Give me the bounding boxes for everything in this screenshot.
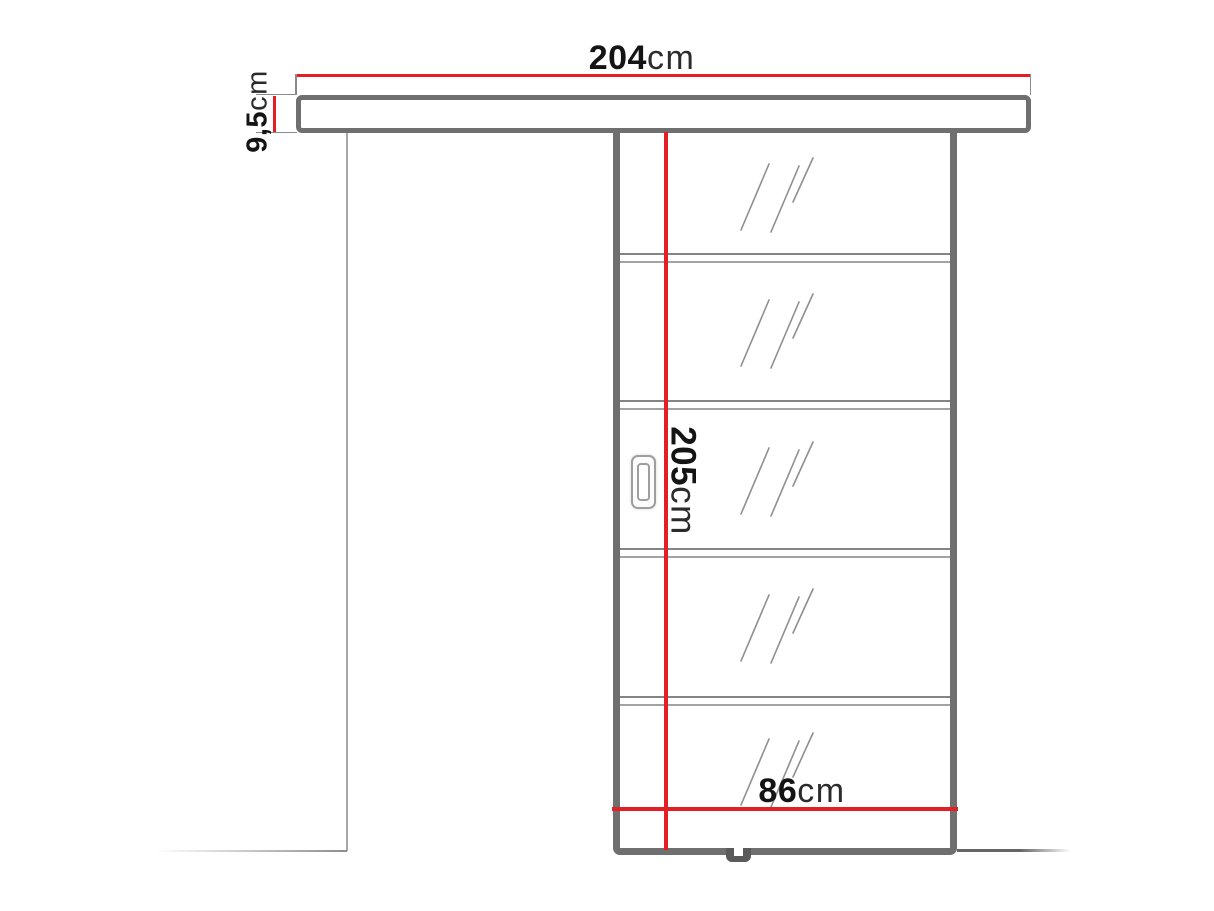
dim-label-door-height: 205cm <box>666 426 701 536</box>
dim-label-door-width: 86cm <box>758 774 845 808</box>
floor-line-right <box>957 849 1071 852</box>
wall-line <box>346 133 348 851</box>
door-dimension-diagram: 204cm 9,5cm 205cm 86cm <box>0 0 1214 911</box>
glass-hatch-icon <box>738 293 818 369</box>
dim-tick-rail-width-right <box>1030 74 1032 95</box>
door-height-value: 205 <box>664 426 703 486</box>
rail-height-value: 9,5 <box>242 111 274 153</box>
rail-height-unit: cm <box>242 69 274 111</box>
glass-hatch-icon <box>738 441 818 517</box>
dim-label-rail-width: 204cm <box>589 41 696 75</box>
glass-hatch-icon <box>738 588 818 664</box>
door-width-unit: cm <box>797 772 845 810</box>
glass-hatch-icon <box>738 157 818 233</box>
panel-divider-4 <box>620 696 950 706</box>
door-width-value: 86 <box>758 772 797 810</box>
panel-divider-3 <box>620 548 950 558</box>
panel-divider-1 <box>620 253 950 263</box>
door-height-unit: cm <box>664 486 703 536</box>
floor-guide-notch <box>734 848 743 856</box>
dim-tick-rail-width-left <box>295 74 297 95</box>
rail-width-unit: cm <box>647 39 695 77</box>
panel-divider-2 <box>620 400 950 410</box>
dim-label-rail-height: 9,5cm <box>244 69 273 153</box>
rail-width-value: 204 <box>589 39 647 77</box>
door-handle-recess <box>637 463 650 501</box>
rail-track <box>296 95 1031 133</box>
floor-line-left <box>155 850 347 852</box>
